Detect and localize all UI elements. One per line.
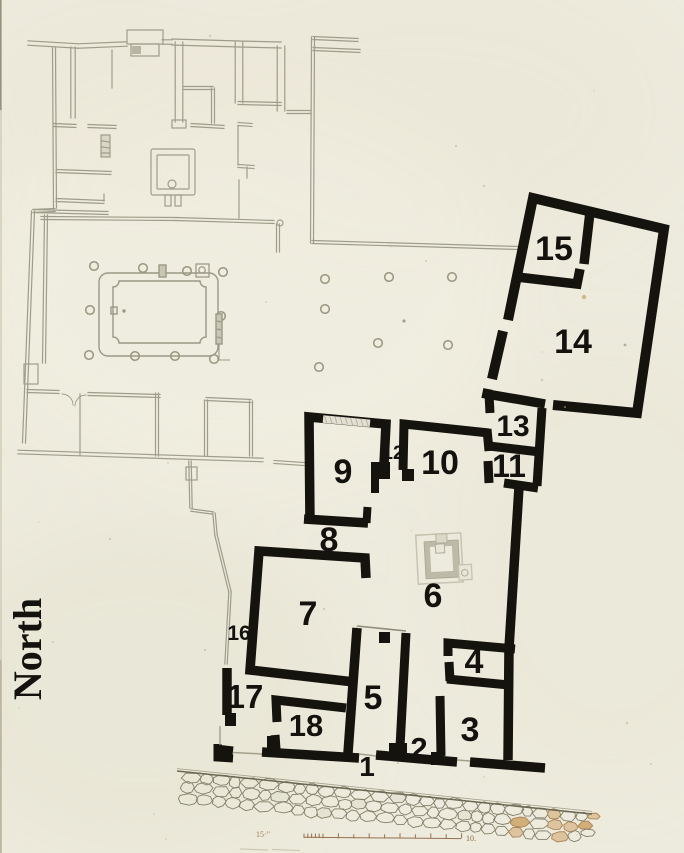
svg-text:9: 9 (334, 453, 353, 491)
svg-text:14: 14 (554, 323, 592, 361)
svg-text:16: 16 (227, 622, 250, 645)
svg-text:11: 11 (492, 448, 526, 484)
svg-text:North: North (5, 598, 50, 700)
svg-text:10.: 10. (466, 834, 476, 843)
svg-text:6: 6 (424, 577, 443, 615)
svg-text:1: 1 (359, 751, 375, 782)
svg-text:15·′′: 15·′′ (256, 830, 270, 839)
svg-text:5: 5 (364, 679, 383, 717)
svg-text:3: 3 (461, 711, 480, 749)
svg-text:12: 12 (382, 443, 403, 464)
svg-text:2: 2 (410, 731, 427, 766)
svg-text:10: 10 (421, 444, 459, 482)
svg-text:4: 4 (465, 643, 484, 681)
svg-text:17: 17 (227, 678, 264, 715)
svg-text:15: 15 (535, 230, 573, 268)
svg-text:13: 13 (496, 410, 529, 443)
svg-text:7: 7 (299, 595, 318, 633)
svg-text:8: 8 (320, 521, 339, 559)
svg-text:18: 18 (289, 708, 323, 743)
